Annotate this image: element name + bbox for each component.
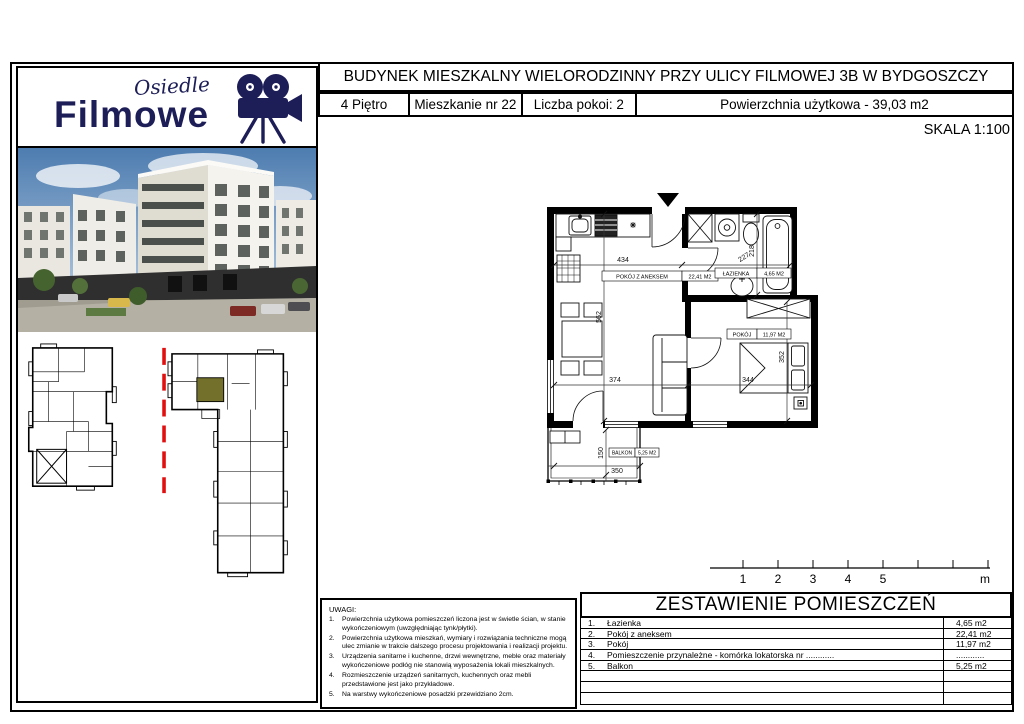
scalebar-label-4: 4 <box>845 572 852 586</box>
room-label-pokoj: POKÓJ 11,97 M2 <box>727 329 791 339</box>
dim-374: 374 <box>609 377 621 384</box>
dim-434: 434 <box>617 257 629 264</box>
dim-344: 344 <box>742 377 754 384</box>
table-row: 4. Pomieszczenie przynależne - komórka l… <box>581 650 1011 661</box>
table-row: 1. Łazienka 4,65 m2 <box>581 618 1011 629</box>
svg-text:ŁAZIENKA: ŁAZIENKA <box>723 271 750 277</box>
rooms-table-rows: 1. Łazienka 4,65 m2 2. Pokój z aneksem 2… <box>580 618 1012 705</box>
table-row: 2. Pokój z aneksem 22,41 m2 <box>581 629 1011 640</box>
table-row <box>581 682 1011 693</box>
svg-text:POKÓJ Z ANEKSEM: POKÓJ Z ANEKSEM <box>616 273 668 280</box>
scale-bar: 1 2 3 4 5 m <box>705 556 995 588</box>
bedroom-furniture <box>740 299 810 409</box>
rooms-table-title: ZESTAWIENIE POMIESZCZEŃ <box>580 592 1012 618</box>
table-row: 3. Pokój 11,97 m2 <box>581 639 1011 650</box>
logo-box: Osiedle Filmowe <box>18 68 316 148</box>
svg-text:POKÓJ: POKÓJ <box>733 331 752 338</box>
header-cell-rooms: Liczba pokoi: 2 <box>523 94 637 115</box>
key-plan-left <box>29 344 117 490</box>
entrance-marker <box>657 193 679 207</box>
header-cell-apartment: Mieszkanie nr 22 <box>410 94 523 115</box>
table-row <box>581 671 1011 682</box>
uwagi-item: 5.Na warstwy wykończeniowe posadzki prze… <box>329 691 568 700</box>
rooms-table: ZESTAWIENIE POMIESZCZEŃ 1. Łazienka 4,65… <box>580 592 1012 705</box>
dim-218: 218 <box>749 245 756 257</box>
scalebar-label-2: 2 <box>775 572 782 586</box>
logo-name: Filmowe <box>54 94 209 136</box>
film-camera-icon <box>232 72 304 144</box>
uwagi-item: 4.Rozmieszczenie urządzeń sanitarnych, k… <box>329 672 568 690</box>
scalebar-label-1: 1 <box>740 572 747 586</box>
uwagi-item: 2.Powierzchnia użytkowa mieszkań, wymiar… <box>329 635 568 653</box>
svg-text:5,25 M2: 5,25 M2 <box>638 451 656 457</box>
key-plan-right <box>168 350 287 577</box>
scalebar-unit: m <box>980 572 990 586</box>
table-row <box>581 693 1011 704</box>
dim-150: 150 <box>598 447 605 459</box>
left-panel: Osiedle Filmowe <box>16 66 318 703</box>
uwagi-item: 3.Urządzenia sanitarne i kuchenne, drzwi… <box>329 653 568 671</box>
header-cell-area: Powierzchnia użytkowa - 39,03 m2 <box>637 94 1012 115</box>
bathroom-fixtures <box>688 214 792 296</box>
dim-350: 350 <box>611 468 623 475</box>
plan-sheet: Osiedle Filmowe <box>0 0 1024 724</box>
building-photo <box>18 148 316 332</box>
scale-label: SKALA 1:100 <box>850 122 1010 138</box>
key-plans <box>18 332 320 701</box>
room-label-lazienka: ŁAZIENKA 4,65 M2 <box>715 268 791 278</box>
table-row: 5. Balkon 5,25 m2 <box>581 661 1011 672</box>
dim-562: 562 <box>596 311 603 323</box>
room-label-pokoj-z-aneksem: POKÓJ Z ANEKSEM 22,41 M2 <box>602 271 718 281</box>
scalebar-label-3: 3 <box>810 572 817 586</box>
svg-text:4,65 M2: 4,65 M2 <box>764 271 784 277</box>
header-info-row: 4 Piętro Mieszkanie nr 22 Liczba pokoi: … <box>318 92 1014 117</box>
header-title: BUDYNEK MIESZKALNY WIELORODZINNY PRZY UL… <box>318 62 1014 92</box>
uwagi-title: UWAGI: <box>329 605 568 614</box>
header-cell-floor: 4 Piętro <box>320 94 410 115</box>
uwagi-box: UWAGI: 1.Powierzchnia użytkowa pomieszcz… <box>320 598 577 709</box>
svg-text:BALKON: BALKON <box>612 451 633 457</box>
dim-352: 352 <box>779 351 786 363</box>
svg-text:11,97 M2: 11,97 M2 <box>763 332 786 338</box>
highlighted-unit <box>197 378 224 402</box>
sofa <box>653 335 687 415</box>
uwagi-item: 1.Powierzchnia użytkowa pomieszczeń licz… <box>329 616 568 634</box>
room-label-balkon: BALKON 5,25 M2 <box>609 448 659 457</box>
scalebar-label-5: 5 <box>880 572 887 586</box>
floor-plan: 434 227 218 562 374 344 352 150 350 POKÓ… <box>535 185 835 505</box>
svg-text:22,41 M2: 22,41 M2 <box>689 274 712 280</box>
